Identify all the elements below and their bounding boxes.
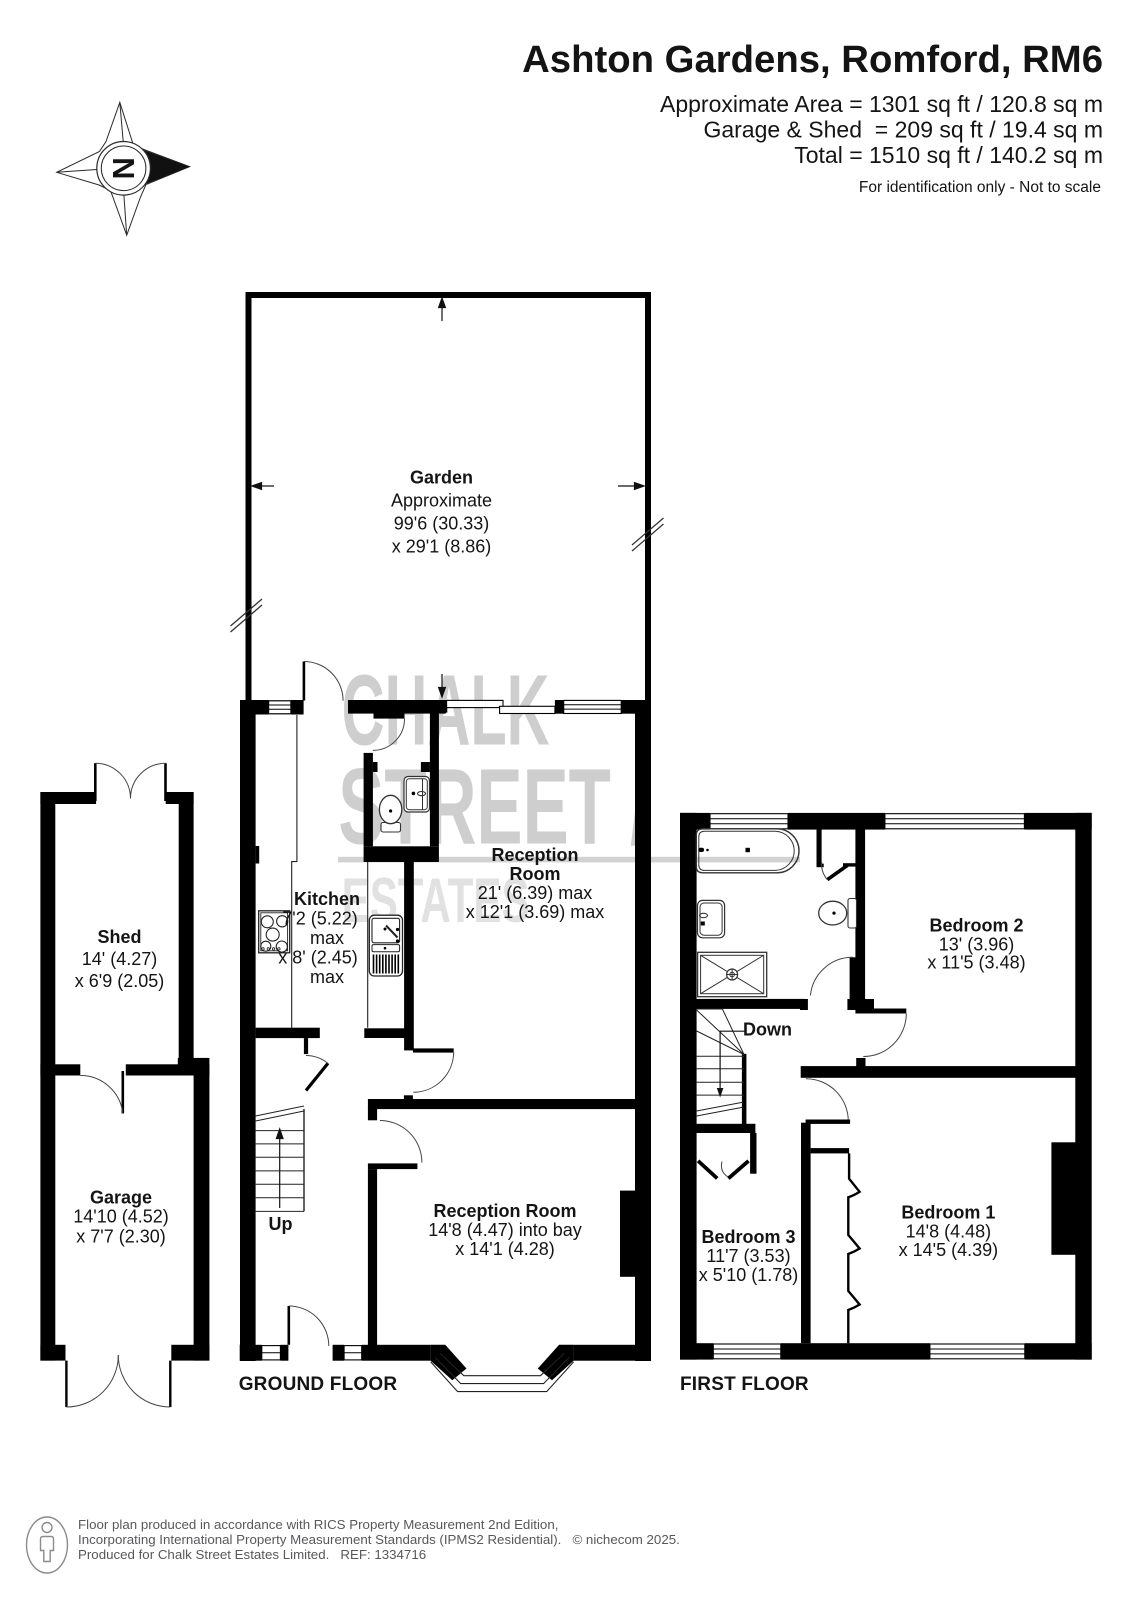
svg-text:13' (3.96): 13' (3.96) [939,935,1014,955]
svg-text:For identification only - Not: For identification only - Not to scale [859,179,1101,196]
svg-text:Reception: Reception [491,845,578,865]
svg-text:Approximate: Approximate [391,491,492,511]
svg-text:x 29'1 (8.86): x 29'1 (8.86) [392,537,492,557]
svg-text:Total = 1510 sq ft / 140.2 sq: Total = 1510 sq ft / 140.2 sq m [794,142,1103,168]
svg-text:21' (6.39) max: 21' (6.39) max [478,883,593,903]
svg-text:FIRST FLOOR: FIRST FLOOR [680,1374,809,1395]
svg-text:Ashton Gardens, Romford, RM6: Ashton Gardens, Romford, RM6 [522,38,1103,81]
svg-text:Bedroom 3: Bedroom 3 [701,1227,795,1247]
svg-text:x 11'5 (3.48): x 11'5 (3.48) [927,953,1025,973]
svg-text:Shed: Shed [97,927,141,947]
svg-text:Produced for Chalk Street Esta: Produced for Chalk Street Estates Limite… [78,1547,426,1562]
svg-text:Up: Up [269,1214,293,1234]
svg-text:Garage & Shed = 209 sq ft / 1: Garage & Shed = 209 sq ft / 19.4 sq m [703,117,1103,143]
svg-text:14'8 (4.48): 14'8 (4.48) [906,1221,992,1241]
svg-text:max: max [310,928,344,948]
svg-text:Garden: Garden [410,468,473,488]
svg-text:x 5'10 (1.78): x 5'10 (1.78) [699,1265,799,1285]
svg-text:GROUND FLOOR: GROUND FLOOR [239,1374,398,1395]
svg-text:x 8' (2.45): x 8' (2.45) [278,948,357,968]
svg-text:x 14'1 (4.28): x 14'1 (4.28) [455,1239,555,1259]
svg-text:7'2 (5.22): 7'2 (5.22) [282,909,357,929]
svg-text:x 14'5 (4.39): x 14'5 (4.39) [899,1240,999,1260]
svg-text:14'10 (4.52): 14'10 (4.52) [73,1207,169,1227]
svg-text:11'7 (3.53): 11'7 (3.53) [706,1246,790,1266]
svg-text:Down: Down [743,1020,792,1040]
svg-text:Garage: Garage [90,1188,152,1208]
svg-text:Room: Room [510,864,561,884]
svg-text:Approximate Area = 1301 sq ft: Approximate Area = 1301 sq ft / 120.8 sq… [660,91,1103,117]
svg-text:Bedroom 1: Bedroom 1 [901,1203,995,1223]
svg-text:Kitchen: Kitchen [294,889,360,909]
svg-text:Bedroom 2: Bedroom 2 [929,916,1023,936]
svg-text:x 7'7 (2.30): x 7'7 (2.30) [76,1227,165,1247]
svg-text:14' (4.27): 14' (4.27) [82,949,157,969]
svg-text:Floor plan produced in accorda: Floor plan produced in accordance with R… [78,1517,558,1532]
svg-text:Reception Room: Reception Room [433,1201,576,1221]
svg-text:99'6 (30.33): 99'6 (30.33) [394,514,490,534]
svg-text:x 12'1 (3.69) max: x 12'1 (3.69) max [466,902,605,922]
svg-text:x 6'9 (2.05): x 6'9 (2.05) [75,971,164,991]
svg-text:N: N [106,157,141,179]
svg-text:max: max [310,967,344,987]
svg-text:14'8 (4.47) into bay: 14'8 (4.47) into bay [428,1220,582,1240]
svg-text:Incorporating International Pr: Incorporating International Property Mea… [78,1532,680,1547]
